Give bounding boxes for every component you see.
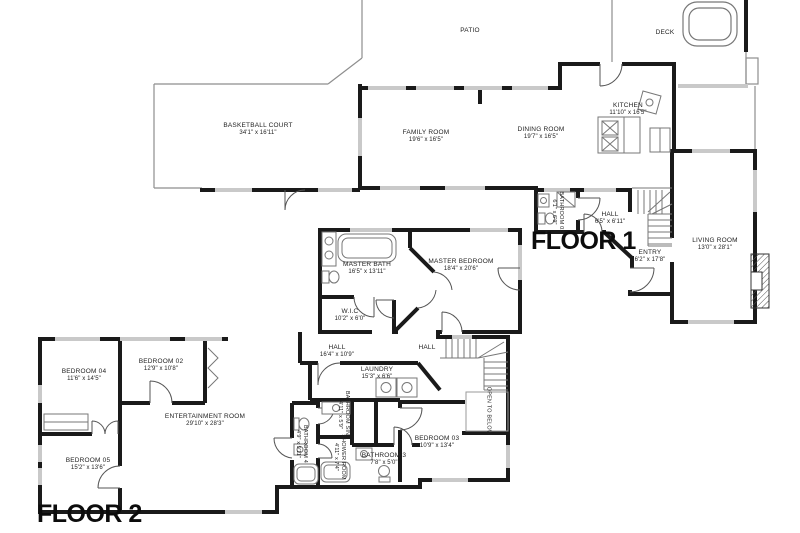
room-label-bedroom-05: BEDROOM 05 15'2" x 13'6" bbox=[66, 457, 111, 473]
bifold-closet-icon bbox=[208, 348, 218, 388]
hot-tub-icon bbox=[683, 2, 737, 46]
room-label-bedroom-04: BEDROOM 04 11'6" x 14'5" bbox=[62, 368, 107, 384]
room-label-entry: ENTRY 6'2" x 17'8" bbox=[635, 249, 666, 265]
floor1-walls bbox=[200, 0, 757, 324]
room-label-hall-stairs: HALL bbox=[418, 344, 435, 352]
room-label-dining-room: DINING ROOM 19'7" x 16'5" bbox=[518, 126, 565, 142]
room-label-bathroom-3: BATHROOM 3 7'8" x 5'0" bbox=[362, 452, 407, 468]
room-label-living-room: LIVING ROOM 13'0" x 28'1" bbox=[692, 237, 738, 253]
floor1-tag: FLOOR 1 bbox=[531, 227, 636, 256]
floor1-stairs-icon bbox=[632, 188, 672, 246]
floor2-tag: FLOOR 2 bbox=[37, 500, 142, 529]
room-label-open-to-below: OPEN TO BELOW bbox=[484, 387, 491, 436]
toilet-icon bbox=[538, 213, 545, 224]
room-label-family-room: FAMILY ROOM 19'6" x 16'5" bbox=[403, 129, 450, 145]
kitchen-island-stove-icon bbox=[598, 91, 670, 153]
room-label-bathroom-4: BATHROOM 4 4'9" x 9'11" bbox=[294, 425, 308, 463]
room-label-master-bath: MASTER BATH 16'5" x 13'11" bbox=[343, 261, 391, 277]
room-label-hall-west: HALL 16'4" x 10'9" bbox=[320, 344, 354, 360]
room-label-hall-floor1: HALL 6'5" x 6'11" bbox=[595, 211, 625, 227]
sink-icon bbox=[538, 194, 549, 207]
room-label-patio: PATIO bbox=[460, 27, 480, 35]
room-label-shower-room: SHOWER ROOM 4'11" x 7'4" bbox=[332, 434, 346, 480]
room-label-kitchen: KITCHEN 11'10" x 16'5" bbox=[609, 102, 646, 118]
room-label-laundry: LAUNDRY 15'3" x 6'6" bbox=[361, 366, 393, 382]
room-label-bathroom-sink: BATHROOM SINK 4'11" x 5'9" bbox=[336, 391, 350, 439]
room-label-bedroom-03: BEDROOM 03 10'9" x 13'4" bbox=[415, 435, 460, 451]
fireplace-icon bbox=[751, 254, 769, 308]
room-label-basketball-court: BASKETBALL COURT 34'1" x 16'11" bbox=[223, 122, 292, 138]
toilet-icon bbox=[322, 271, 329, 283]
room-label-wic: W.I.C 10'2" x 6'0" bbox=[335, 308, 366, 324]
floorplan-page: PATIO DECK BASKETBALL COURT 34'1" x 16'1… bbox=[0, 0, 800, 533]
floor2-stairs-icon bbox=[440, 339, 508, 431]
room-label-entertainment-room: ENTERTAINMENT ROOM 29'10" x 28'3" bbox=[165, 413, 245, 429]
room-label-bedroom-02: BEDROOM 02 12'9" x 10'8" bbox=[139, 358, 184, 374]
room-label-master-bedroom: MASTER BEDROOM 18'4" x 20'6" bbox=[428, 258, 493, 274]
room-label-deck: DECK bbox=[656, 29, 675, 37]
